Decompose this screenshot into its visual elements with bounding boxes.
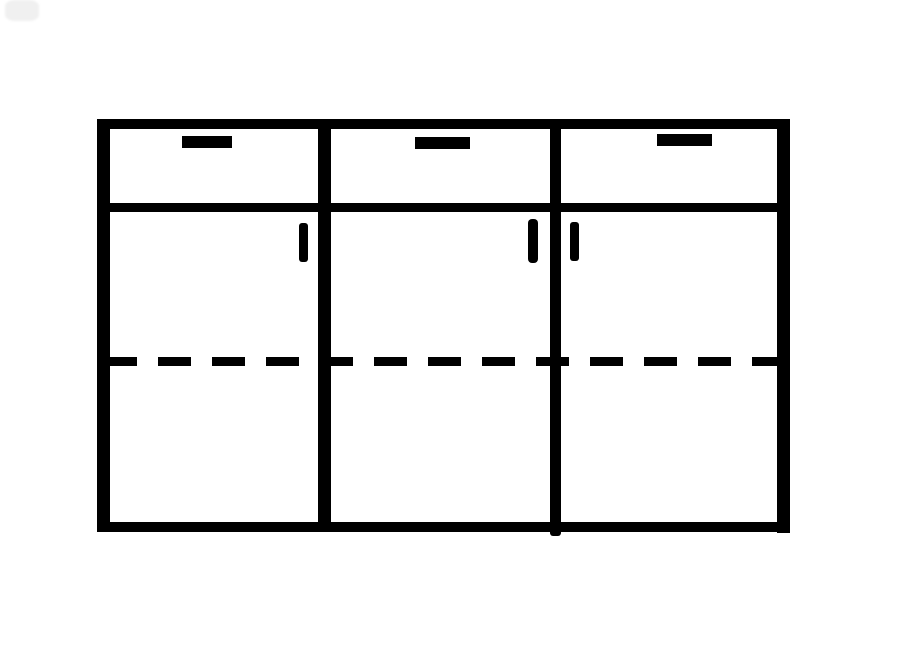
door-handle-middle-section [528,219,538,263]
cabinet-top-edge [97,119,790,129]
cabinet-right-edge [777,119,790,533]
section-divider-right [550,119,561,536]
drawer-handle-left [182,136,232,148]
shelf-dashed-line [104,357,784,366]
drawer-handle-middle [415,137,470,149]
door-handle-left-section [299,223,308,262]
cabinet-left-edge [97,119,110,532]
drawer-row-divider-line [97,203,790,212]
drawing-canvas [0,0,900,650]
door-handle-right-section [570,222,579,261]
cabinet-bottom-edge [97,522,790,532]
section-divider-left [318,119,331,532]
corner-smudge-artifact [5,0,39,21]
drawer-handle-right [657,134,712,146]
